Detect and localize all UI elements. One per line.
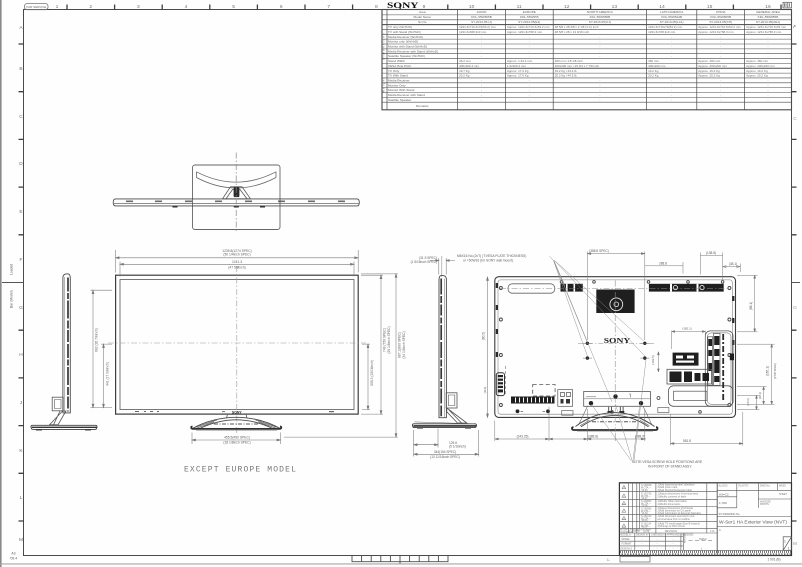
svg-text:SY-2013-05(U1): SY-2013-05(U1): [589, 20, 611, 24]
svg-text:441 (17 3/8inch): 441 (17 3/8inch): [106, 362, 110, 386]
svg-text:-: -: [481, 40, 482, 44]
svg-text:Approx. 1231.6x716.6x53.2 mm: Approx. 1231.6x716.6x53.2 mm: [507, 25, 550, 29]
svg-text:-: -: [673, 547, 674, 550]
svg-text:(47 5/8inch): (47 5/8inch): [228, 265, 245, 269]
svg-text:Monitor only (WxHxD): Monitor only (WxHxD): [388, 40, 418, 44]
svg-text:D: D: [19, 161, 23, 167]
svg-text:1.5x300.4 mm: 1.5x300.4 mm: [507, 64, 527, 68]
svg-text:'09.4: '09.4: [10, 557, 17, 561]
svg-text:-: -: [671, 93, 672, 97]
svg-text:Media Receiver: Media Receiver: [388, 79, 410, 83]
svg-text:C: C: [793, 116, 797, 122]
svg-text:1231.6x716x76(53.2) mm: 1231.6x716x76(53.2) mm: [648, 25, 683, 29]
svg-text:3: 3: [137, 4, 140, 10]
svg-text:KDL-55W844B: KDL-55W844B: [661, 15, 682, 19]
svg-text:-: -: [599, 88, 600, 92]
svg-text:-: -: [481, 93, 482, 97]
svg-text:-: -: [671, 45, 672, 49]
svg-text:(138.8): (138.8): [706, 251, 716, 255]
svg-text:A3=C2: A3=C2: [719, 493, 729, 497]
svg-text:-: -: [673, 543, 674, 546]
svg-text:1: 1: [784, 540, 786, 544]
svg-text:TV Only: TV Only: [388, 69, 400, 73]
svg-text:Satellite Speaker: Satellite Speaker: [388, 98, 411, 102]
svg-text:5: 5: [232, 4, 235, 10]
svg-text:1-: 1-: [607, 558, 610, 562]
svg-text:TV With Stand: TV With Stand: [388, 74, 408, 78]
svg-text:VESA Hole Pitch: VESA Hole Pitch: [388, 64, 411, 68]
svg-text:Area: Area: [419, 10, 426, 14]
svg-text:(5 1/16inch): (5 1/16inch): [449, 445, 466, 449]
svg-text:Sv No: Sv No: [418, 20, 427, 24]
svg-text:460 mm / 18 1/8 inch: 460 mm / 18 1/8 inch: [555, 59, 583, 63]
svg-text:KDL-55W855B: KDL-55W855B: [758, 15, 779, 19]
svg-text:-: -: [768, 98, 769, 102]
svg-text:SY-2013-05-(J): SY-2013-05-(J): [471, 20, 492, 24]
svg-text:C: C: [719, 528, 721, 532]
svg-text:(29 1/8inch SPEC): (29 1/8inch SPEC): [387, 326, 391, 353]
svg-text:JAPAN: JAPAN: [477, 10, 487, 14]
svg-text:-: -: [671, 88, 672, 92]
svg-text:SY-2013-05(CH): SY-2013-05(CH): [709, 20, 732, 24]
svg-text:SONY: SONY: [387, 1, 419, 10]
svg-text:-: -: [599, 83, 600, 87]
svg-text:(102.5): (102.5): [651, 355, 655, 365]
svg-text:(165.1): (165.1): [766, 366, 770, 376]
svg-text:-: -: [720, 45, 721, 49]
svg-text:MASS: MASS: [779, 485, 786, 488]
svg-text:-: -: [599, 54, 600, 58]
svg-text:KDL-55W955: KDL-55W955: [520, 15, 539, 19]
svg-text:MODEL b: MODEL b: [620, 534, 631, 537]
svg-text:GENERAL AREA: GENERAL AREA: [756, 10, 781, 14]
svg-text:455.5(450 SPEC): 455.5(450 SPEC): [224, 436, 250, 440]
svg-text:S/T.DRAWING No.: S/T.DRAWING No.: [719, 512, 741, 516]
svg-text:(20.3): (20.3): [746, 398, 750, 405]
svg-text:W-Ser1 HA Exterior View (NVT): W-Ser1 HA Exterior View (NVT): [719, 519, 788, 524]
svg-text:-: -: [642, 538, 643, 541]
svg-text:-: -: [671, 83, 672, 87]
svg-text:Approx. 200x200 mm: Approx. 200x200 mm: [698, 64, 727, 68]
svg-text:(60.5): (60.5): [482, 332, 486, 340]
svg-text:-: -: [671, 98, 672, 102]
svg-text:-: -: [481, 83, 482, 87]
svg-text:E: E: [19, 209, 22, 215]
svg-text:581.8: 581.8: [683, 439, 691, 443]
svg-text:-: -: [673, 538, 674, 541]
svg-text:A3: A3: [11, 552, 15, 556]
svg-text:-: -: [481, 88, 482, 92]
svg-text:-: -: [720, 88, 721, 92]
svg-text:Model Name: Model Name: [414, 15, 432, 19]
svg-text:Approx. 1231.6x768.3 mm: Approx. 1231.6x768.3 mm: [746, 30, 782, 34]
svg-text:-: -: [720, 49, 721, 53]
svg-text:SY-2013-05(AE1): SY-2013-05(AE1): [756, 20, 780, 24]
svg-text:867.1(880 SPEC): 867.1(880 SPEC): [398, 332, 402, 358]
svg-text:-: -: [481, 49, 482, 53]
svg-text:1231.6x668.3x3 mm: 1231.6x668.3x3 mm: [459, 30, 487, 34]
svg-text:SHEET: SHEET: [779, 493, 788, 496]
svg-text:46.2 mm: 46.2 mm: [459, 59, 471, 63]
svg-text:-: -: [529, 49, 530, 53]
svg-text:or +50W16 (for SONY wall mount: or +50W16 (for SONY wall mount): [463, 258, 513, 262]
svg-text:SY-2013-05(E1): SY-2013-05(E1): [518, 20, 540, 24]
svg-text:-: -: [720, 93, 721, 97]
svg-text:1:10: 1:10: [710, 531, 715, 533]
svg-text:-: -: [599, 49, 600, 53]
svg-text:(38.1): (38.1): [729, 262, 737, 266]
svg-text:-: -: [768, 45, 769, 49]
svg-text:-: -: [529, 93, 530, 97]
svg-text:Satellite Speaker (WxHxD): Satellite Speaker (WxHxD): [388, 54, 425, 58]
svg-text:749 (750 SPEC): 749 (750 SPEC): [383, 328, 387, 352]
svg-text:-: -: [481, 45, 482, 49]
svg-text:Approx. 1.34.4 mm: Approx. 1.34.4 mm: [507, 59, 533, 63]
svg-text:-: -: [657, 547, 658, 550]
svg-text:CHINA: CHINA: [716, 10, 727, 14]
svg-text:Media Receiver with Stand (WxH: Media Receiver with Stand (WxHxD): [388, 49, 438, 53]
svg-text:682 (26 7/8inch): 682 (26 7/8inch): [95, 328, 99, 352]
svg-text:(1 5/16inch SPEC): (1 5/16inch SPEC): [411, 260, 437, 264]
svg-text:Approx. 1231.6x716.6x53.2 mm: Approx. 1231.6x716.6x53.2 mm: [698, 25, 741, 29]
svg-text:-: -: [720, 35, 721, 39]
svg-text:DESIGN S: DESIGN S: [621, 547, 633, 550]
svg-text:-: -: [768, 35, 769, 39]
svg-text:Monitor Only: Monitor Only: [388, 83, 406, 87]
svg-text:M: M: [19, 537, 23, 543]
svg-text:1231.6x768.3x3 mm: 1231.6x768.3x3 mm: [648, 30, 676, 34]
svg-text:20.2 Kg: 20.2 Kg: [459, 74, 470, 78]
svg-text:IN FRONT OF STAND ASSY.: IN FRONT OF STAND ASSY.: [648, 465, 692, 469]
svg-text:-: -: [671, 79, 672, 83]
svg-text:-: -: [599, 45, 600, 49]
svg-text:(18 1/8inch SPEC): (18 1/8inch SPEC): [223, 441, 250, 445]
svg-text:PLASTIC: PLASTIC: [739, 485, 749, 488]
svg-text:Ap 2013: Ap 2013: [719, 485, 729, 488]
svg-text:-: -: [599, 98, 600, 102]
svg-text:B: B: [19, 66, 22, 72]
svg-text:Approx. 1231.6x768.3 mm: Approx. 1231.6x768.3 mm: [507, 30, 543, 34]
svg-text:400x200 mm / 15 3/4 x 7 7/8 in: 400x200 mm / 15 3/4 x 7 7/8 inch: [555, 64, 600, 68]
svg-text:-: -: [529, 88, 530, 92]
svg-text:SY-2013-05(LA1): SY-2013-05(LA1): [660, 20, 684, 24]
svg-text:CHECKED bY: CHECKED bY: [651, 534, 667, 537]
svg-text:288.8: 288.8: [659, 261, 667, 265]
svg-text:Weight: Weight: [382, 76, 386, 92]
svg-text:-: -: [529, 79, 530, 83]
svg-text:-: -: [671, 54, 672, 58]
svg-text:TaPuC: TaPuC: [699, 537, 707, 541]
svg-text:-: -: [529, 54, 530, 58]
svg-text:SONY: SONY: [232, 411, 243, 415]
svg-text:Approx. 200x200 mm: Approx. 200x200 mm: [746, 64, 775, 68]
svg-text:-: -: [599, 35, 600, 39]
svg-text:-: -: [671, 40, 672, 44]
svg-text:2: 2: [89, 4, 92, 10]
svg-text:-: -: [768, 88, 769, 92]
svg-text:-: -: [768, 40, 769, 44]
svg-text:L: L: [20, 495, 23, 501]
svg-text:KDL-55W805B: KDL-55W805B: [710, 15, 731, 19]
svg-text:-: -: [529, 45, 530, 49]
svg-text:Remarks: Remarks: [416, 104, 429, 108]
svg-text:-: -: [768, 54, 769, 58]
svg-text:-: -: [768, 83, 769, 87]
svg-text:NORTH AMERICA: NORTH AMERICA: [587, 10, 614, 14]
svg-text:1: 1: [788, 547, 790, 551]
svg-text:(388.8 SPEC): (388.8 SPEC): [589, 249, 609, 253]
svg-text:Loaded: Loaded: [10, 264, 14, 275]
svg-text:APPD: APPD: [633, 530, 640, 533]
svg-text:-: -: [657, 538, 658, 541]
svg-text:DWG No.: DWG No.: [760, 485, 771, 488]
svg-text:1: 1: [56, 4, 59, 10]
svg-text:FORMAT: FORMAT: [622, 543, 632, 546]
svg-text:SONY: SONY: [604, 337, 632, 345]
svg-text:C: C: [19, 114, 23, 120]
svg-text:-: -: [529, 35, 530, 39]
svg-text:KDL-55W850B: KDL-55W850B: [590, 15, 611, 19]
svg-text:(34 1/8inch SPEC): (34 1/8inch SPEC): [402, 331, 406, 358]
svg-text:-: -: [671, 35, 672, 39]
svg-text:REVISION: REVISION: [665, 529, 678, 533]
svg-text:-: -: [720, 79, 721, 83]
svg-text:EXCEPT EUROPE MODEL: EXCEPT EUROPE MODEL: [184, 466, 297, 475]
svg-text:G: G: [19, 305, 23, 311]
svg-text:EUROPE: EUROPE: [523, 10, 536, 14]
svg-text:19.2 Kg: 19.2 Kg: [648, 69, 659, 73]
svg-text:1241.3: 1241.3: [232, 260, 242, 264]
svg-text:-: -: [642, 543, 643, 546]
svg-text:2)Change to FSC format: 2)Change to FSC format: [658, 525, 686, 528]
svg-text:Media Receiver with Stand: Media Receiver with Stand: [388, 93, 425, 97]
svg-text:Dimensions: Dimensions: [382, 32, 386, 60]
svg-text:Monitor with Stand (WxHxD): Monitor with Stand (WxHxD): [388, 45, 427, 49]
svg-text:(2T/B SPEC): (2T/B SPEC): [773, 363, 777, 379]
svg-text:F: F: [20, 257, 23, 263]
svg-text:Approx. 1231.6x768.3 mm: Approx. 1231.6x768.3 mm: [698, 30, 734, 34]
svg-text:TV only (WxHxD): TV only (WxHxD): [388, 25, 412, 29]
svg-text:Monitor With Stand: Monitor With Stand: [388, 88, 415, 92]
svg-text:(38.1): (38.1): [758, 392, 762, 399]
svg-text:505.3 (15/16inch): 505.3 (15/16inch): [370, 360, 374, 386]
svg-text:-: -: [720, 54, 721, 58]
svg-text:Media Receiver (WxHxD): Media Receiver (WxHxD): [388, 35, 423, 39]
svg-text:Stand Width: Stand Width: [388, 59, 405, 63]
svg-text:460 mm: 460 mm: [648, 59, 659, 63]
svg-text:DESIGN bY: DESIGN bY: [636, 534, 649, 537]
svg-text:M: M: [793, 541, 797, 547]
svg-text:1231.6x716.6x76(53.2) mm: 1231.6x716.6x76(53.2) mm: [459, 25, 496, 29]
svg-text:7: 7: [327, 4, 330, 10]
svg-text:344(154 SPEC): 344(154 SPEC): [434, 450, 456, 454]
svg-text:Approx. 460 mm: Approx. 460 mm: [698, 59, 721, 63]
svg-text:20.2 Kg / 44.5 lb: 20.2 Kg / 44.5 lb: [555, 74, 577, 78]
svg-text:-: -: [599, 79, 600, 83]
svg-text:LATIN AMERICA: LATIN AMERICA: [660, 10, 684, 14]
svg-text:-: -: [720, 40, 721, 44]
svg-text:4: 4: [185, 4, 188, 10]
svg-text:(110): (110): [483, 387, 487, 394]
svg-text:(388.8): (388.8): [588, 434, 598, 438]
svg-text:-: -: [768, 49, 769, 53]
svg-text:Approx. 20.2 Kg: Approx. 20.2 Kg: [698, 74, 720, 78]
svg-text:(50 1/4inch SPEC): (50 1/4inch SPEC): [223, 253, 250, 257]
svg-text:8: 8: [375, 4, 378, 10]
svg-text:-: -: [642, 547, 643, 550]
svg-text:-: -: [481, 35, 482, 39]
svg-text:2)Modify dimensions: 2)Modify dimensions: [658, 503, 682, 506]
svg-text:48 5/8 x 28 3/8 x 2 1/8 (3 in): 48 5/8 x 28 3/8 x 2 1/8 (3 in) inch: [555, 25, 599, 29]
svg-text:-: -: [481, 54, 482, 58]
svg-text:400x200 mm: 400x200 mm: [648, 64, 666, 68]
svg-text:TV with Stand (WxHxD): TV with Stand (WxHxD): [388, 30, 421, 34]
svg-text:-: -: [768, 79, 769, 83]
svg-text:G: G: [793, 305, 797, 311]
svg-text:-: -: [599, 40, 600, 44]
svg-text:(182.1): (182.1): [682, 326, 692, 330]
svg-text:20.2 Kg: 20.2 Kg: [648, 74, 659, 78]
svg-text:-: -: [529, 40, 530, 44]
svg-text:-: -: [529, 83, 530, 87]
svg-text:Approx. 20.2 Kg: Approx. 20.2 Kg: [746, 74, 768, 78]
svg-text:MODEL: MODEL: [622, 538, 631, 541]
svg-text:Approx. 460 mm: Approx. 460 mm: [746, 59, 769, 63]
svg-text:-: -: [481, 98, 482, 102]
svg-text:(88.1): (88.1): [749, 302, 753, 310]
svg-text:-: -: [599, 93, 600, 97]
svg-text:KDL-55W805B: KDL-55W805B: [471, 15, 492, 19]
svg-text:Bar (Model): Bar (Model): [10, 290, 14, 308]
svg-text:NOTE:VESA SCREW HOLE POSITIONS: NOTE:VESA SCREW HOLE POSITIONS ARE: [632, 460, 703, 464]
svg-text:(13 11/16inch SPEC): (13 11/16inch SPEC): [430, 455, 460, 459]
svg-text:Approx. 19.2 Kg: Approx. 19.2 Kg: [746, 69, 768, 73]
svg-text:6: 6: [280, 4, 283, 10]
svg-text:H: H: [19, 352, 23, 358]
svg-text:-: -: [657, 543, 658, 546]
svg-text:-: -: [720, 83, 721, 87]
svg-text:(388.9): (388.9): [635, 434, 645, 438]
svg-text:Approx. 19.2 Kg: Approx. 19.2 Kg: [698, 69, 720, 73]
svg-text:1,700: 1,700: [719, 501, 727, 505]
svg-text:FOR SERVICE: FOR SERVICE: [26, 5, 46, 9]
svg-text:Approx. 17.9 Kg: Approx. 17.9 Kg: [507, 74, 529, 78]
svg-text:Approx. 1231.6x716.6x53 mm: Approx. 1231.6x716.6x53 mm: [746, 25, 787, 29]
svg-text:400x200.4 mm: 400x200.4 mm: [459, 64, 479, 68]
svg-text:terminal area from rel softlin: terminal area from rel softline: [658, 518, 691, 521]
svg-text:APPROVED bY: APPROVED bY: [667, 534, 684, 537]
svg-text:-: -: [529, 98, 530, 102]
svg-text:PRINTS: PRINTS: [760, 503, 769, 506]
svg-text:48 5/8 x 28 x 13 9/16 inch: 48 5/8 x 28 x 13 9/16 inch: [555, 30, 590, 34]
svg-text:(243.25): (243.25): [517, 434, 529, 438]
svg-text:-: -: [768, 93, 769, 97]
svg-text:1 001 (B): 1 001 (B): [768, 557, 781, 561]
svg-text:REF.DWG: REF.DWG: [684, 533, 686, 543]
svg-text:-: -: [671, 49, 672, 53]
svg-text:Approx. 17.9 Kg: Approx. 17.9 Kg: [507, 69, 529, 73]
svg-text:19.7 Kg: 19.7 Kg: [459, 69, 470, 73]
svg-text:-: -: [720, 98, 721, 102]
svg-text:19.2 Kg / 43.4 lb: 19.2 Kg / 43.4 lb: [555, 69, 577, 73]
svg-text:-: -: [481, 79, 482, 83]
svg-text:2)Modify contents of table: 2)Modify contents of table: [658, 495, 687, 498]
svg-text:3)Add Monitor/Subwoofer table: 3)Add Monitor/Subwoofer table: [658, 489, 693, 492]
